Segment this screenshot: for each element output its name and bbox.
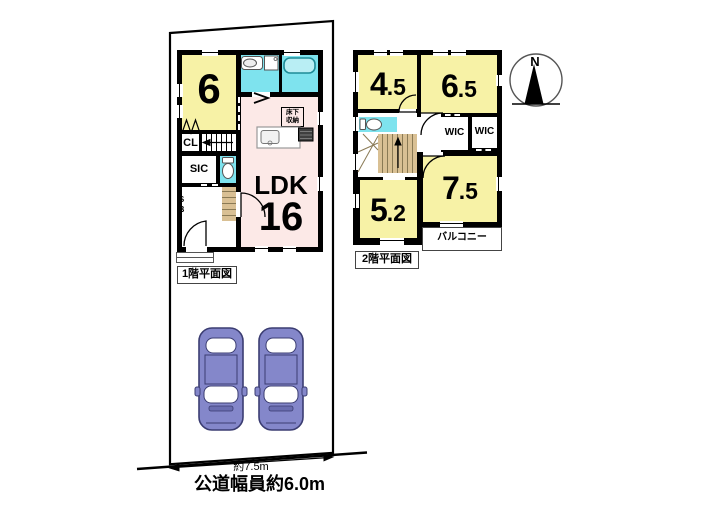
car: [195, 328, 247, 430]
room-45-size-label: 4.5: [360, 68, 416, 100]
door-opening-room45: [399, 109, 416, 113]
shoebox-label: SB: [176, 195, 185, 215]
window: [177, 105, 183, 118]
sic-label: SIC: [185, 164, 213, 175]
balcony-label: バルコニー: [432, 232, 492, 243]
wic-left-label: WIC: [441, 128, 468, 138]
window: [255, 246, 268, 252]
compass-circle: [510, 54, 562, 106]
car: [255, 328, 307, 430]
door-opening-hall-ldk: [236, 192, 241, 217]
stairs-first-floor: [202, 134, 236, 151]
second-floor-caption: 2階平面図: [355, 251, 419, 269]
stair-winder-1f: [222, 187, 236, 221]
floor-plan-sheet: 6 LDK 16 CL SIC SB 床下 収納 4.5 6.5 5.2 7.5…: [0, 0, 705, 525]
room-75-int: 7: [442, 170, 459, 206]
first-floor-caption: 1階平面図: [177, 266, 237, 284]
sic-opening-dashed: [201, 184, 218, 186]
room-45-dec: .5: [387, 74, 406, 100]
toilet-room-1f: [220, 156, 236, 183]
room-52-size-label: 5.2: [360, 194, 416, 226]
toilet-room-2f: [358, 117, 397, 132]
window: [353, 154, 359, 170]
porch-step-line: [176, 257, 214, 258]
door-opening-room65: [421, 113, 441, 117]
road-width-label: 公道幅員約6.0m: [182, 475, 337, 495]
room-65-int: 6: [441, 68, 458, 104]
room-75-size-label: 7.5: [430, 172, 490, 204]
wic-door-dashed: [476, 149, 491, 151]
door-opening-room52: [383, 176, 405, 180]
compass: N: [510, 54, 562, 106]
window: [317, 112, 323, 125]
window: [380, 238, 404, 245]
window: [374, 50, 387, 56]
room-6-size-label: 6: [186, 68, 232, 110]
bathroom: [282, 55, 318, 92]
window: [353, 194, 359, 208]
room-65-size-label: 6.5: [428, 70, 490, 102]
window: [177, 84, 183, 97]
window: [451, 50, 466, 56]
window: [353, 72, 359, 92]
room-52-int: 5: [370, 192, 387, 228]
window: [353, 117, 359, 131]
window: [283, 246, 296, 252]
window: [433, 50, 448, 56]
wic-door-dashed: [445, 114, 460, 116]
window: [202, 50, 218, 56]
room-52-dec: .2: [387, 200, 406, 226]
frontage-dimension-label: 約7.5m: [225, 461, 277, 473]
window: [284, 50, 300, 56]
stair-winder-2f: [358, 134, 378, 173]
door-opening-room75: [423, 152, 443, 156]
compass-north-label: N: [530, 54, 539, 69]
corridor-2f: [417, 117, 441, 152]
stairs-second-floor: [378, 134, 417, 173]
wic-right-label: WIC: [472, 127, 497, 137]
room-75-dec: .5: [459, 178, 478, 204]
floor-storage-line1: 床下: [282, 109, 303, 117]
closet-label: CL: [182, 138, 199, 149]
floor-storage-line2: 収納: [282, 117, 303, 125]
door-opening-washroom: [252, 92, 270, 97]
room-45-int: 4: [370, 66, 387, 102]
sliding-partition-dashed: [238, 97, 240, 130]
north-arrow: [525, 64, 544, 104]
window: [496, 75, 502, 86]
ldk-size-label: 16: [243, 197, 319, 237]
room-65-dec: .5: [458, 76, 477, 102]
floor-storage-box: 床下 収納: [281, 107, 304, 127]
window: [496, 177, 502, 191]
window: [390, 50, 403, 56]
washroom: [241, 55, 279, 92]
